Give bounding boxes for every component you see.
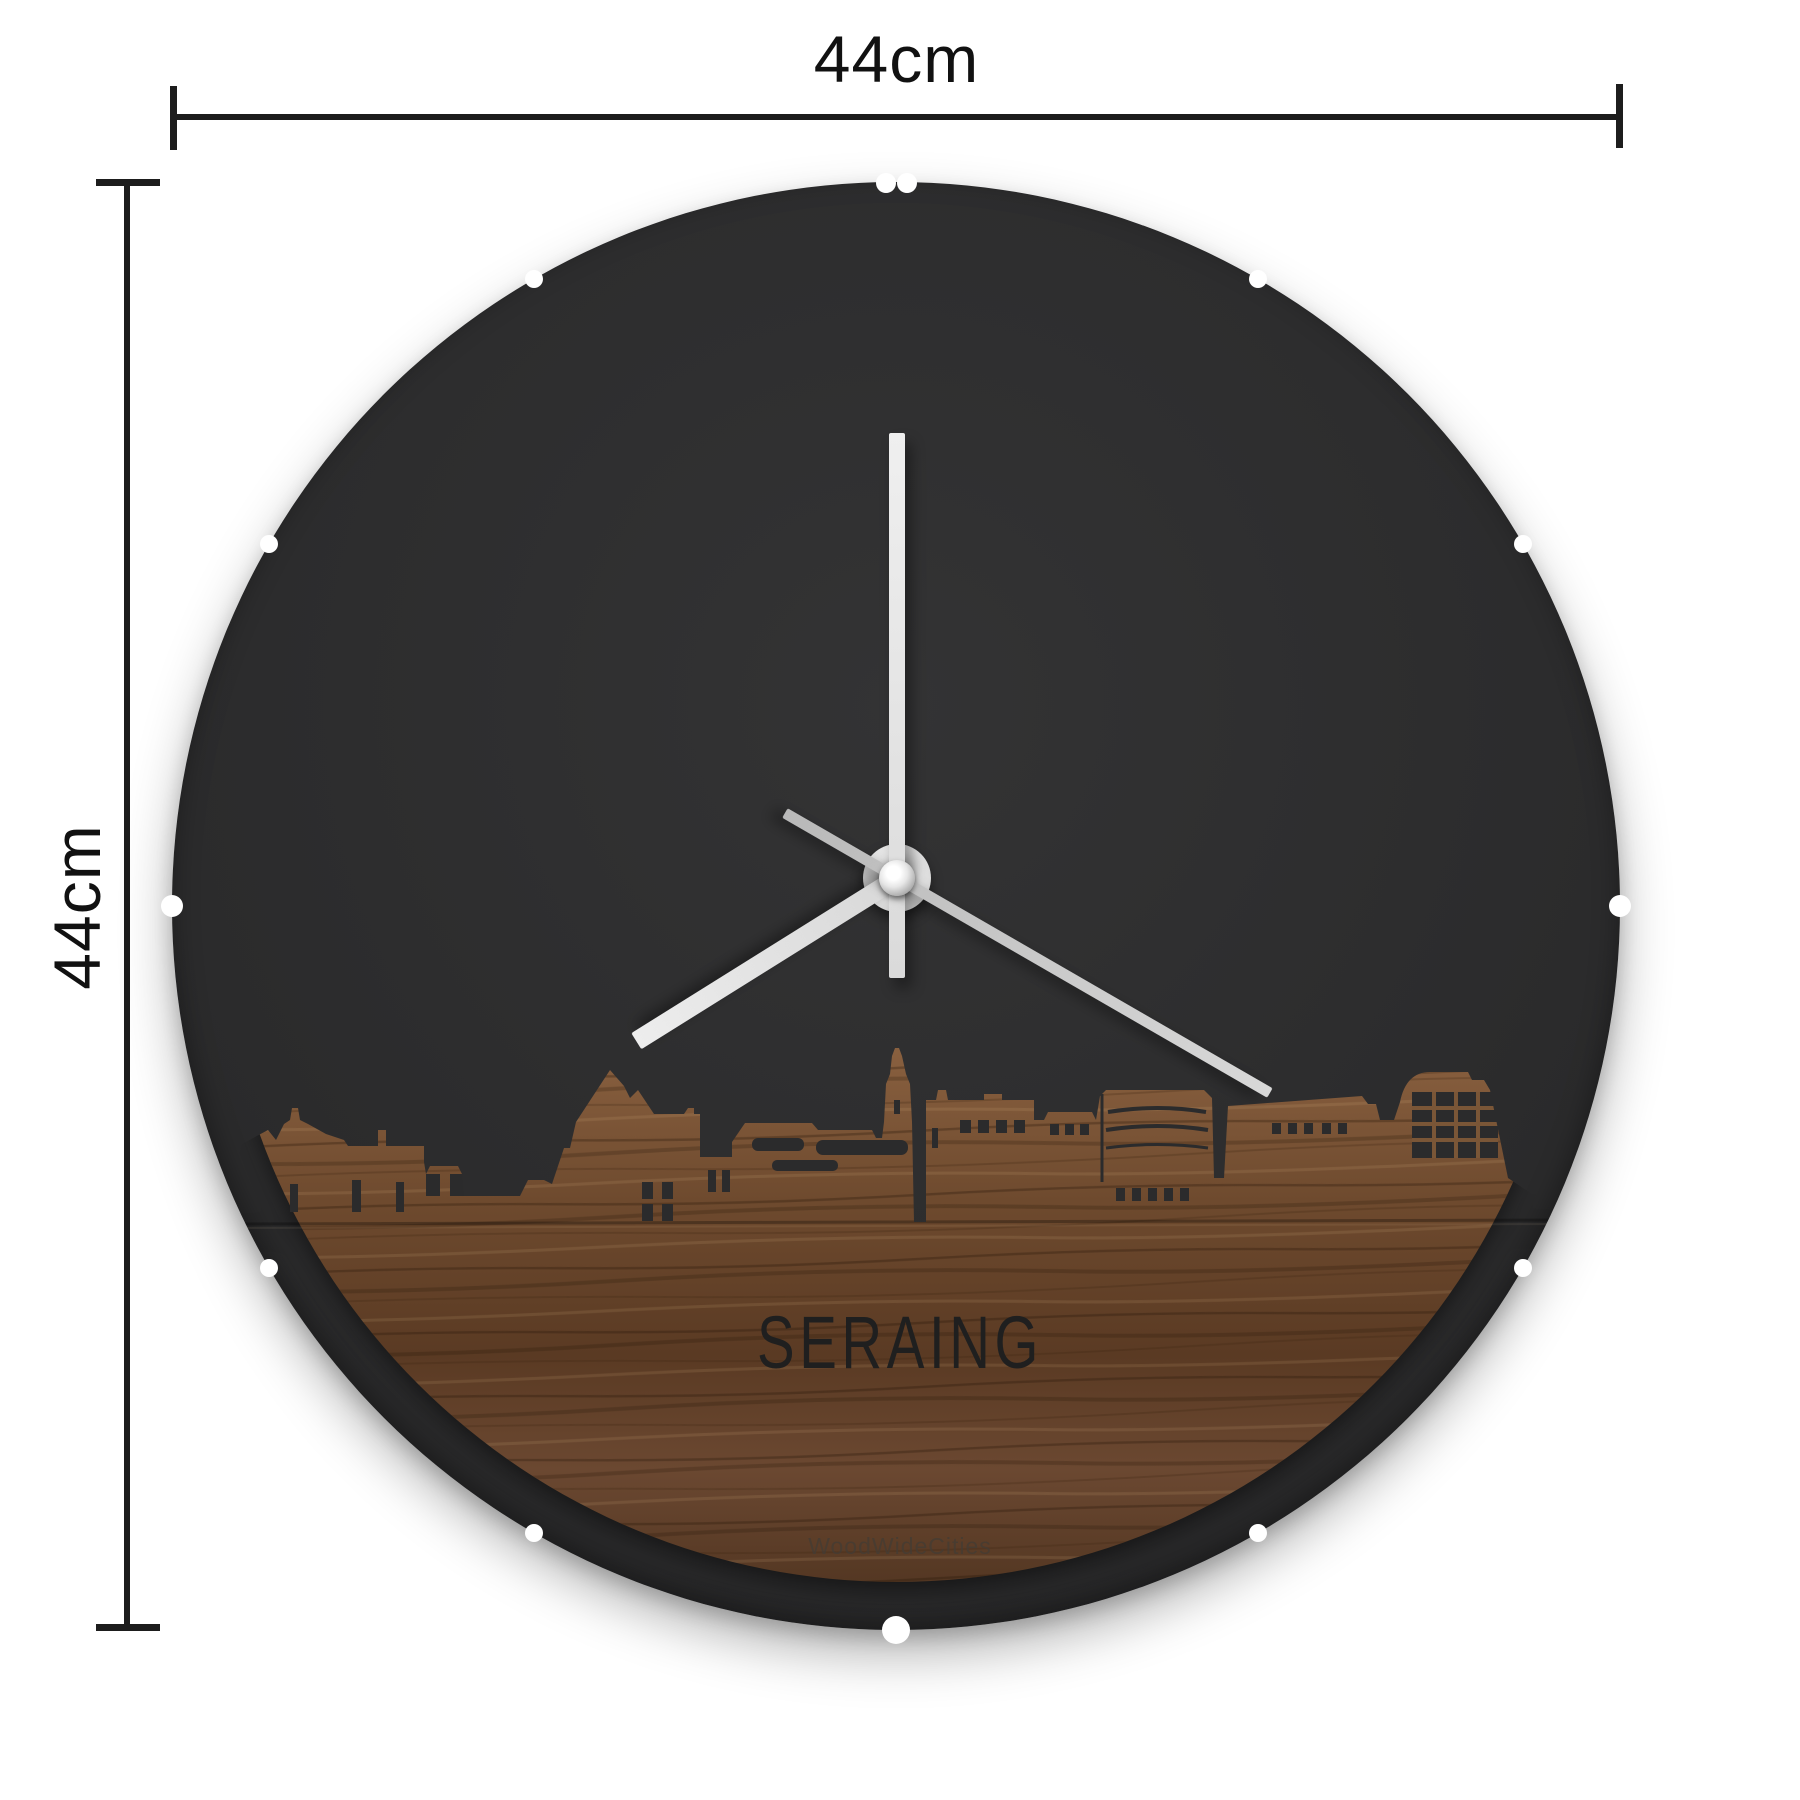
rim-notch-2 [1514, 535, 1532, 553]
minute-hand [889, 433, 905, 978]
width-dimension-tick-right [1616, 84, 1623, 148]
width-dimension-tick-left [170, 86, 177, 150]
rim-notch-4 [1514, 1259, 1532, 1277]
rim-notch-1 [1249, 270, 1267, 288]
clock-face: SERAING WoodWideCities [172, 182, 1620, 1630]
brand-watermark: WoodWideCities [808, 1533, 992, 1559]
rim-notch-12b [897, 173, 917, 193]
width-dimension-label: 44cm [173, 26, 1620, 92]
product-dimension-image: { "annotations": { "width_label": "44cm"… [0, 0, 1800, 1800]
rim-notch-7 [525, 1524, 543, 1542]
height-dimension-label: 44cm [44, 824, 110, 989]
height-dimension-tick-bottom [96, 1624, 160, 1631]
clock-hub-cap [879, 860, 915, 896]
rim-notch-3 [1609, 895, 1631, 917]
height-dimension-line [124, 182, 130, 1630]
height-dimension-tick-top [96, 179, 160, 186]
rim-notch-6 [882, 1616, 910, 1644]
width-dimension-line [173, 114, 1620, 120]
city-name-cutout: SERAING [757, 1301, 1043, 1384]
rim-notch-5 [1249, 1524, 1267, 1542]
rim-notch-9 [161, 895, 183, 917]
rim-notch-10 [260, 535, 278, 553]
rim-notch-11 [525, 270, 543, 288]
rim-notch-8 [260, 1259, 278, 1277]
rim-notch-12a [876, 173, 896, 193]
